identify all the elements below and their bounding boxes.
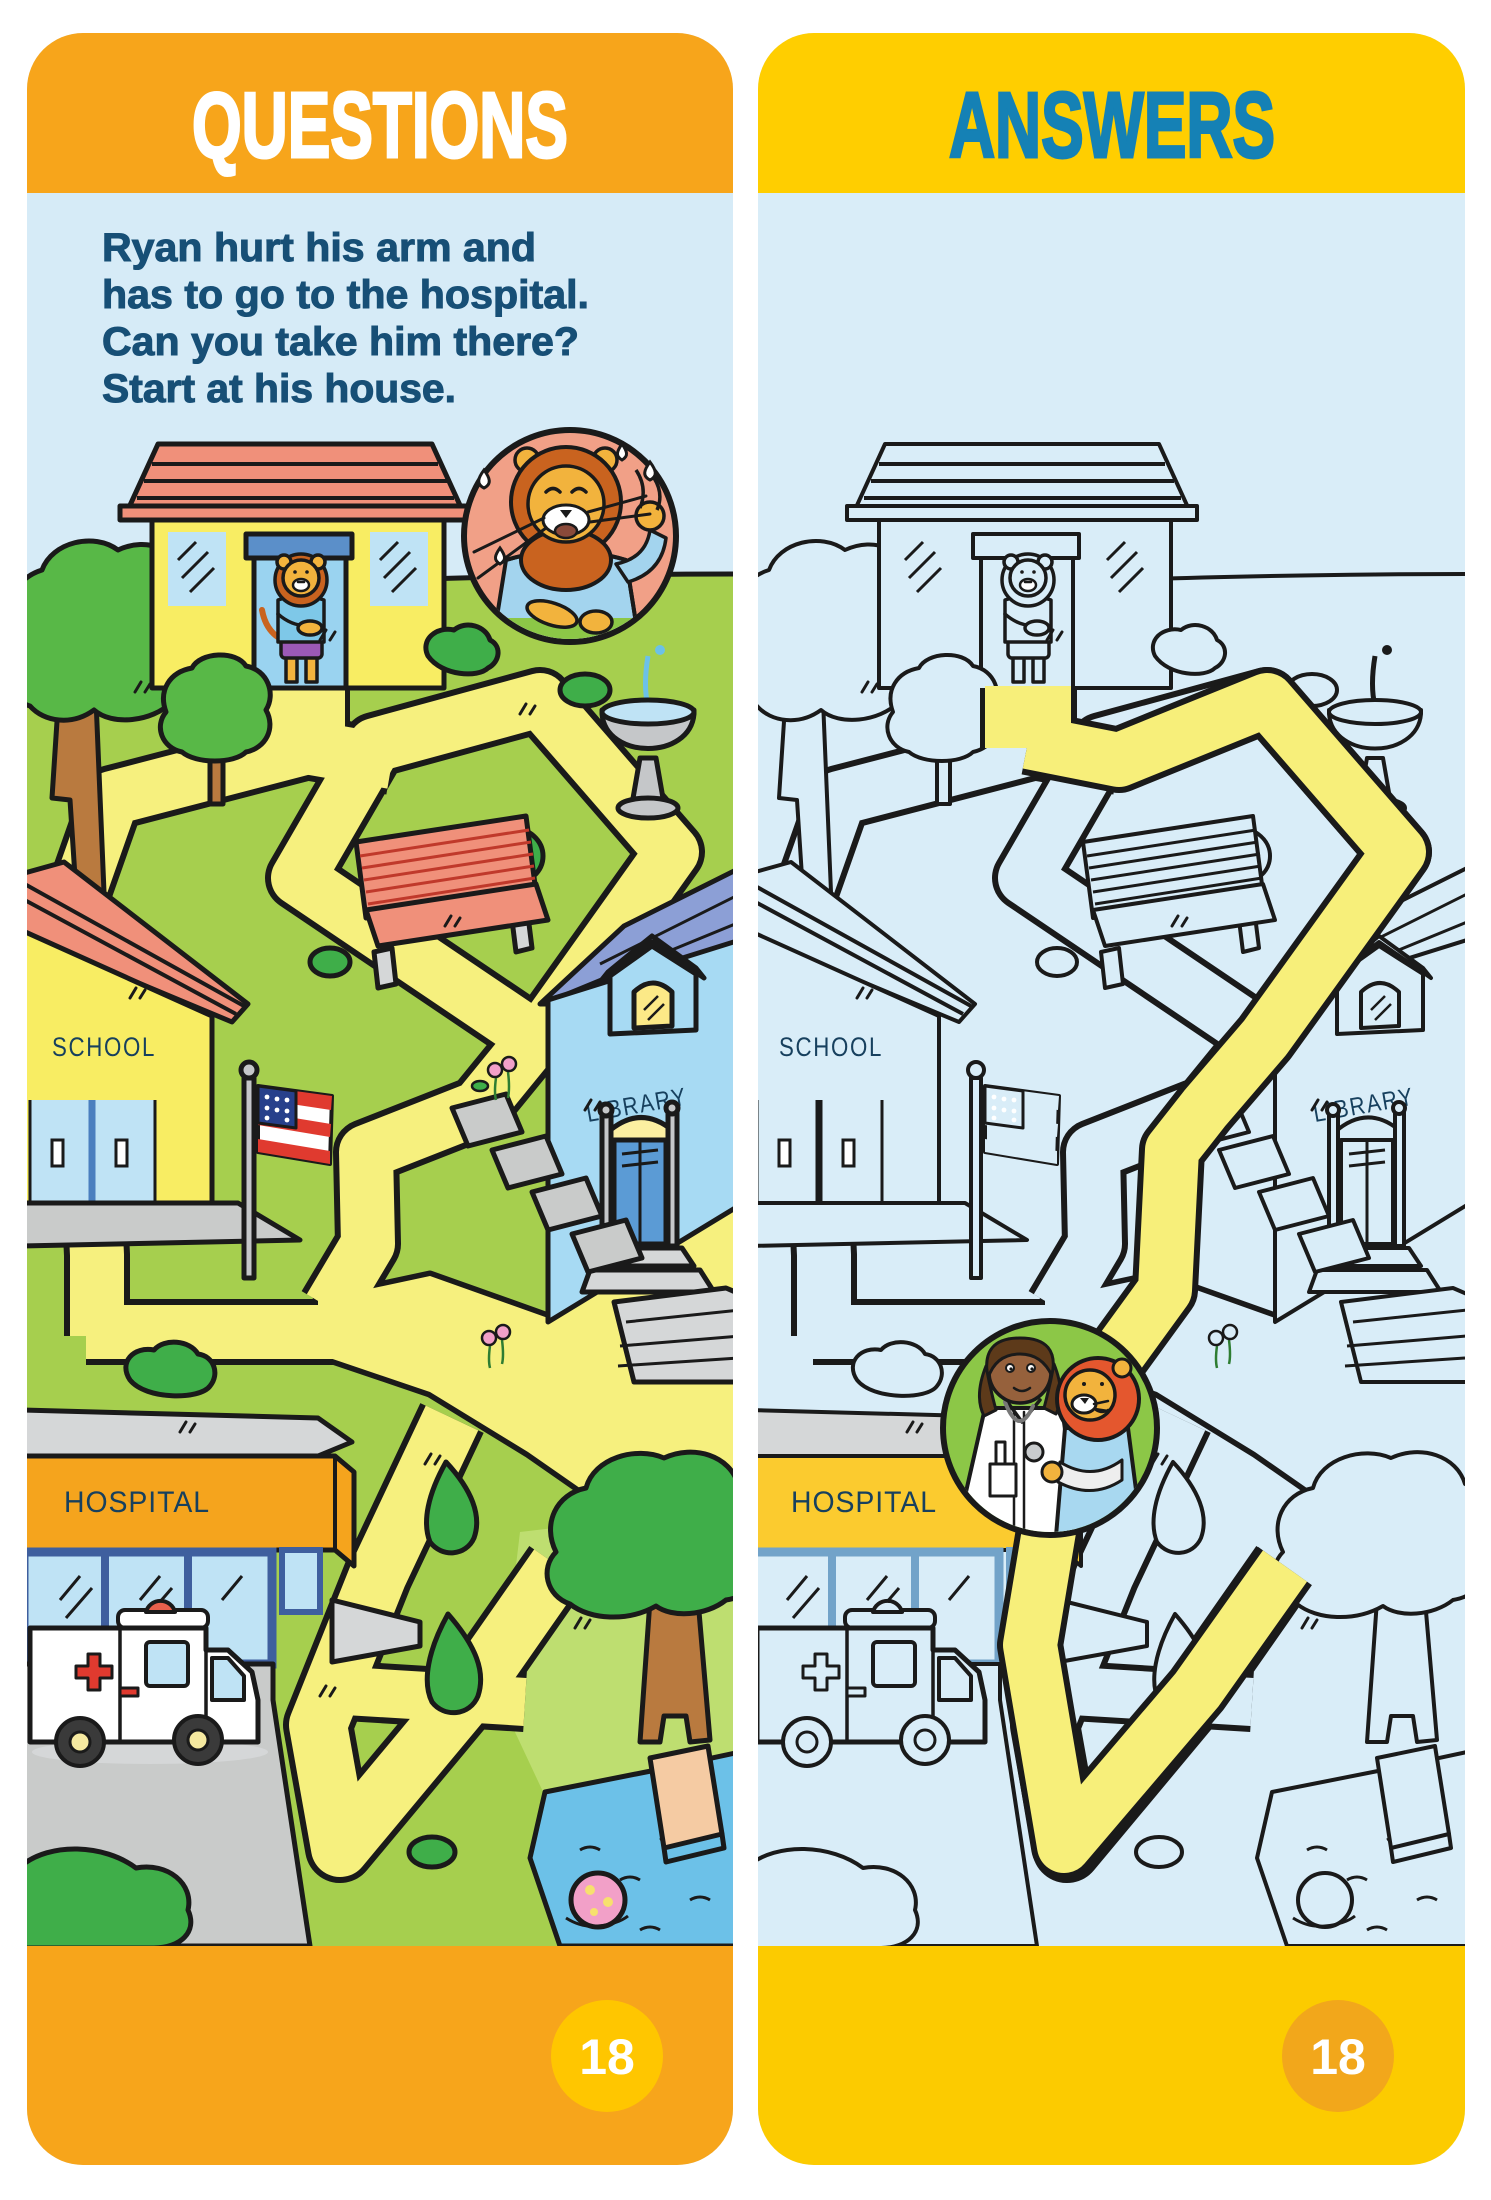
svg-text:ANSWERS: ANSWERS [949, 73, 1275, 177]
svg-text:Start at his house.: Start at his house. [102, 367, 456, 411]
svg-text:18: 18 [579, 2029, 635, 2085]
svg-text:has to go to the hospital.: has to go to the hospital. [102, 273, 589, 317]
svg-text:Ryan hurt his arm and: Ryan hurt his arm and [102, 226, 536, 270]
svg-text:QUESTIONS: QUESTIONS [192, 73, 568, 177]
svg-text:Can you take him there?: Can you take him there? [102, 320, 579, 364]
svg-text:18: 18 [1310, 2029, 1366, 2085]
